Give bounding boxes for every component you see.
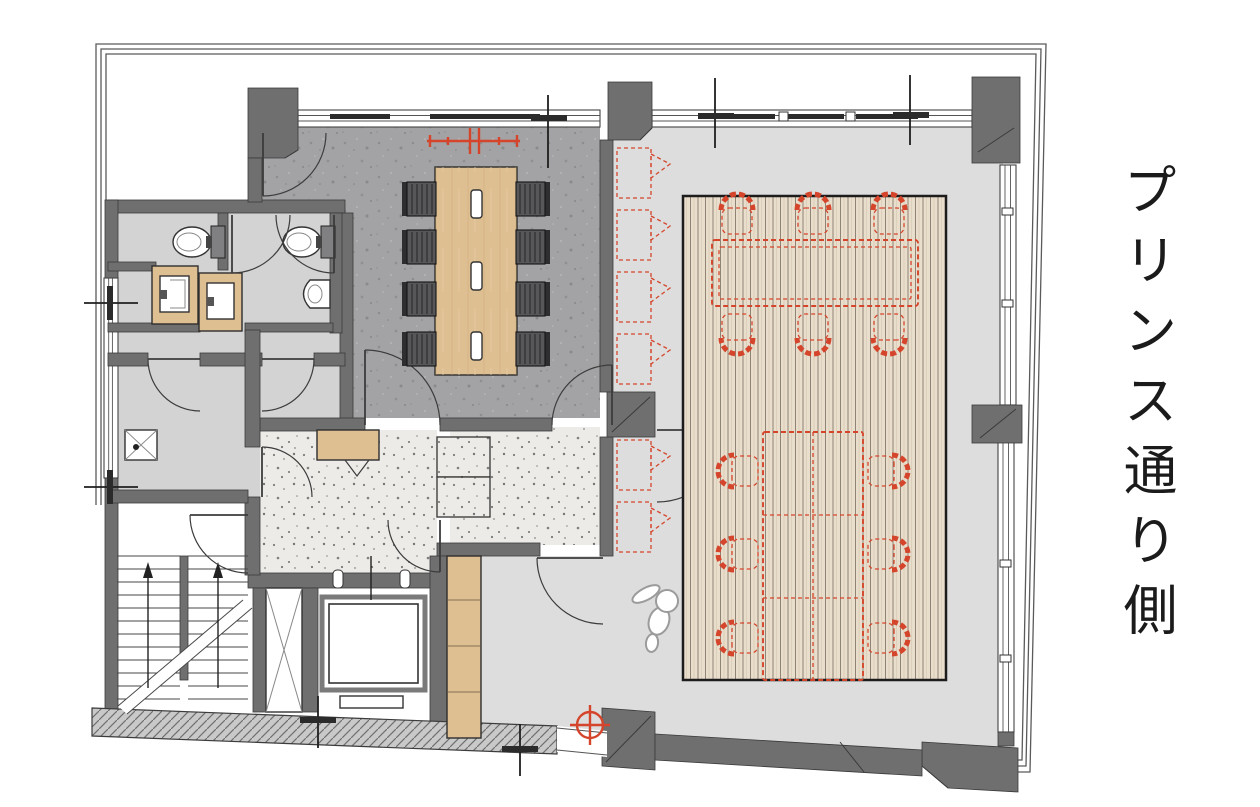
closet (437, 437, 490, 517)
kitchen-bottom-wall (437, 543, 540, 556)
column-mid-divider (607, 392, 655, 437)
column-top-right (972, 77, 1020, 163)
floor-plan-canvas: プリンス通り側 (0, 0, 1260, 807)
hall-left-wall (430, 556, 447, 746)
cable-grommet (471, 262, 482, 290)
elevator-jamb-right (400, 570, 410, 588)
window-right-wall-lower (998, 442, 1014, 732)
right-wall-stub (998, 732, 1014, 746)
elevator-jamb-left (333, 570, 343, 588)
meeting-table (435, 167, 517, 375)
column-bottom-middle (602, 708, 655, 770)
elevator-car (329, 604, 418, 683)
vanity-1 (152, 266, 198, 324)
elevator-sill (340, 696, 403, 708)
left-wall-lower (105, 478, 118, 718)
meeting-bottom-wall-a (260, 418, 365, 431)
cable-grommet (471, 332, 482, 360)
meeting-bottom-wall-b (440, 418, 552, 431)
pantry-left-wall-a (245, 330, 260, 447)
cable-grommet (471, 190, 482, 218)
toilet-top-wall (108, 200, 345, 213)
toilet-1 (173, 226, 225, 258)
floor-plan-svg (0, 0, 1260, 807)
kitchen-right-wall (600, 437, 613, 556)
faucet-icon (160, 290, 167, 299)
pipe-shaft (125, 430, 157, 460)
stair-top-wall (108, 490, 248, 503)
wood-deck (683, 196, 946, 680)
elevator-top-wall (248, 573, 447, 588)
meeting-event-divider-wall (600, 140, 613, 392)
urinal (304, 280, 331, 308)
column-top-middle (608, 82, 652, 140)
window-right-wall-upper (1000, 165, 1016, 405)
toilet-inner-wall (108, 262, 156, 271)
pantry-left-wall-b (245, 497, 260, 575)
elevator-left-wall (253, 588, 266, 712)
column-right-middle (972, 405, 1022, 443)
street-side-label: プリンス通り側 (1118, 162, 1172, 692)
elevator-mid-wall (302, 588, 318, 712)
wood-cabinets (447, 556, 481, 738)
corridor-wall-a (108, 353, 148, 366)
column-bottom-right (922, 742, 1018, 792)
faucet-icon (207, 297, 214, 306)
corridor-wall-c (314, 353, 345, 366)
vanity-2 (199, 273, 242, 331)
